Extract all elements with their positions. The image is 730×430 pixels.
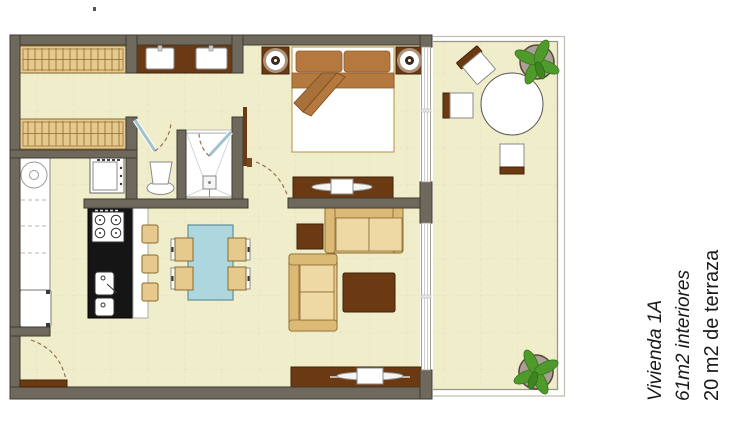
nightstand-right xyxy=(396,47,423,74)
wall-left xyxy=(10,35,20,399)
double-bed xyxy=(292,47,394,152)
coffee-table xyxy=(343,273,395,312)
dresser xyxy=(293,177,393,199)
glass-door-living xyxy=(421,223,431,370)
oven xyxy=(90,158,124,193)
wardrobe-bottom xyxy=(20,119,126,149)
wall-shower-right xyxy=(232,117,243,204)
dining-chair xyxy=(228,238,250,261)
terrace-round-table xyxy=(481,73,543,135)
stray-mark xyxy=(93,7,96,11)
dining-chair xyxy=(171,238,193,261)
wall-fridge-nook xyxy=(10,327,50,336)
lamp xyxy=(263,48,288,73)
lamp xyxy=(397,48,422,73)
wall-toilet-shower xyxy=(177,130,186,200)
shower-screen xyxy=(182,130,232,133)
wall-stub xyxy=(232,35,243,73)
floor-plan-canvas: Vivienda 1A 61m2 interiores 20 m2 de ter… xyxy=(0,0,730,430)
terrace-area-label: 20 m2 de terraza xyxy=(698,171,726,401)
fridge xyxy=(20,290,51,327)
vanity-double-sink xyxy=(137,44,232,73)
wall-bedroom-divider xyxy=(288,198,432,208)
nightstand-left xyxy=(262,47,289,74)
wall-toilet-left xyxy=(126,117,137,204)
wall-top xyxy=(10,35,432,45)
wall-bottom xyxy=(10,387,432,399)
dining-chair xyxy=(171,267,193,290)
bar-stool xyxy=(142,255,158,273)
sofa-vertical xyxy=(289,254,337,331)
bar-stools xyxy=(142,225,158,301)
floor-plan xyxy=(0,0,730,430)
interior-area-label: 61m2 interiores xyxy=(670,171,698,401)
pillow xyxy=(344,51,390,72)
terrace-chair xyxy=(443,93,473,118)
glass-door-bedroom xyxy=(421,47,431,182)
wall-right-bottom xyxy=(420,370,432,399)
dining-chair xyxy=(228,267,250,290)
terrace-chair xyxy=(500,144,524,174)
bar-stool xyxy=(142,225,158,243)
plan-title: Vivienda 1A xyxy=(642,171,670,401)
blanket xyxy=(292,73,394,88)
wardrobe-top xyxy=(20,46,126,73)
plan-title-block: Vivienda 1A 61m2 interiores 20 m2 de ter… xyxy=(642,171,726,401)
wall-right-middle xyxy=(420,182,432,223)
wall-closet xyxy=(10,150,137,158)
washing-machine xyxy=(21,162,47,188)
door-leaf xyxy=(243,107,247,166)
wall-kitchen-divider xyxy=(84,199,248,208)
wall-stub xyxy=(126,35,137,73)
island-sink xyxy=(95,272,117,316)
dining-table xyxy=(188,225,233,300)
cooktop xyxy=(92,212,124,242)
tv-console xyxy=(291,367,422,387)
sofa-horizontal xyxy=(325,207,403,253)
kitchen-island xyxy=(88,208,148,318)
side-table xyxy=(297,224,323,249)
door-hinge xyxy=(247,158,252,167)
pillow xyxy=(296,51,342,72)
bar-stool xyxy=(142,283,158,301)
door-leaf xyxy=(20,380,67,387)
wall-right-top xyxy=(420,35,432,47)
